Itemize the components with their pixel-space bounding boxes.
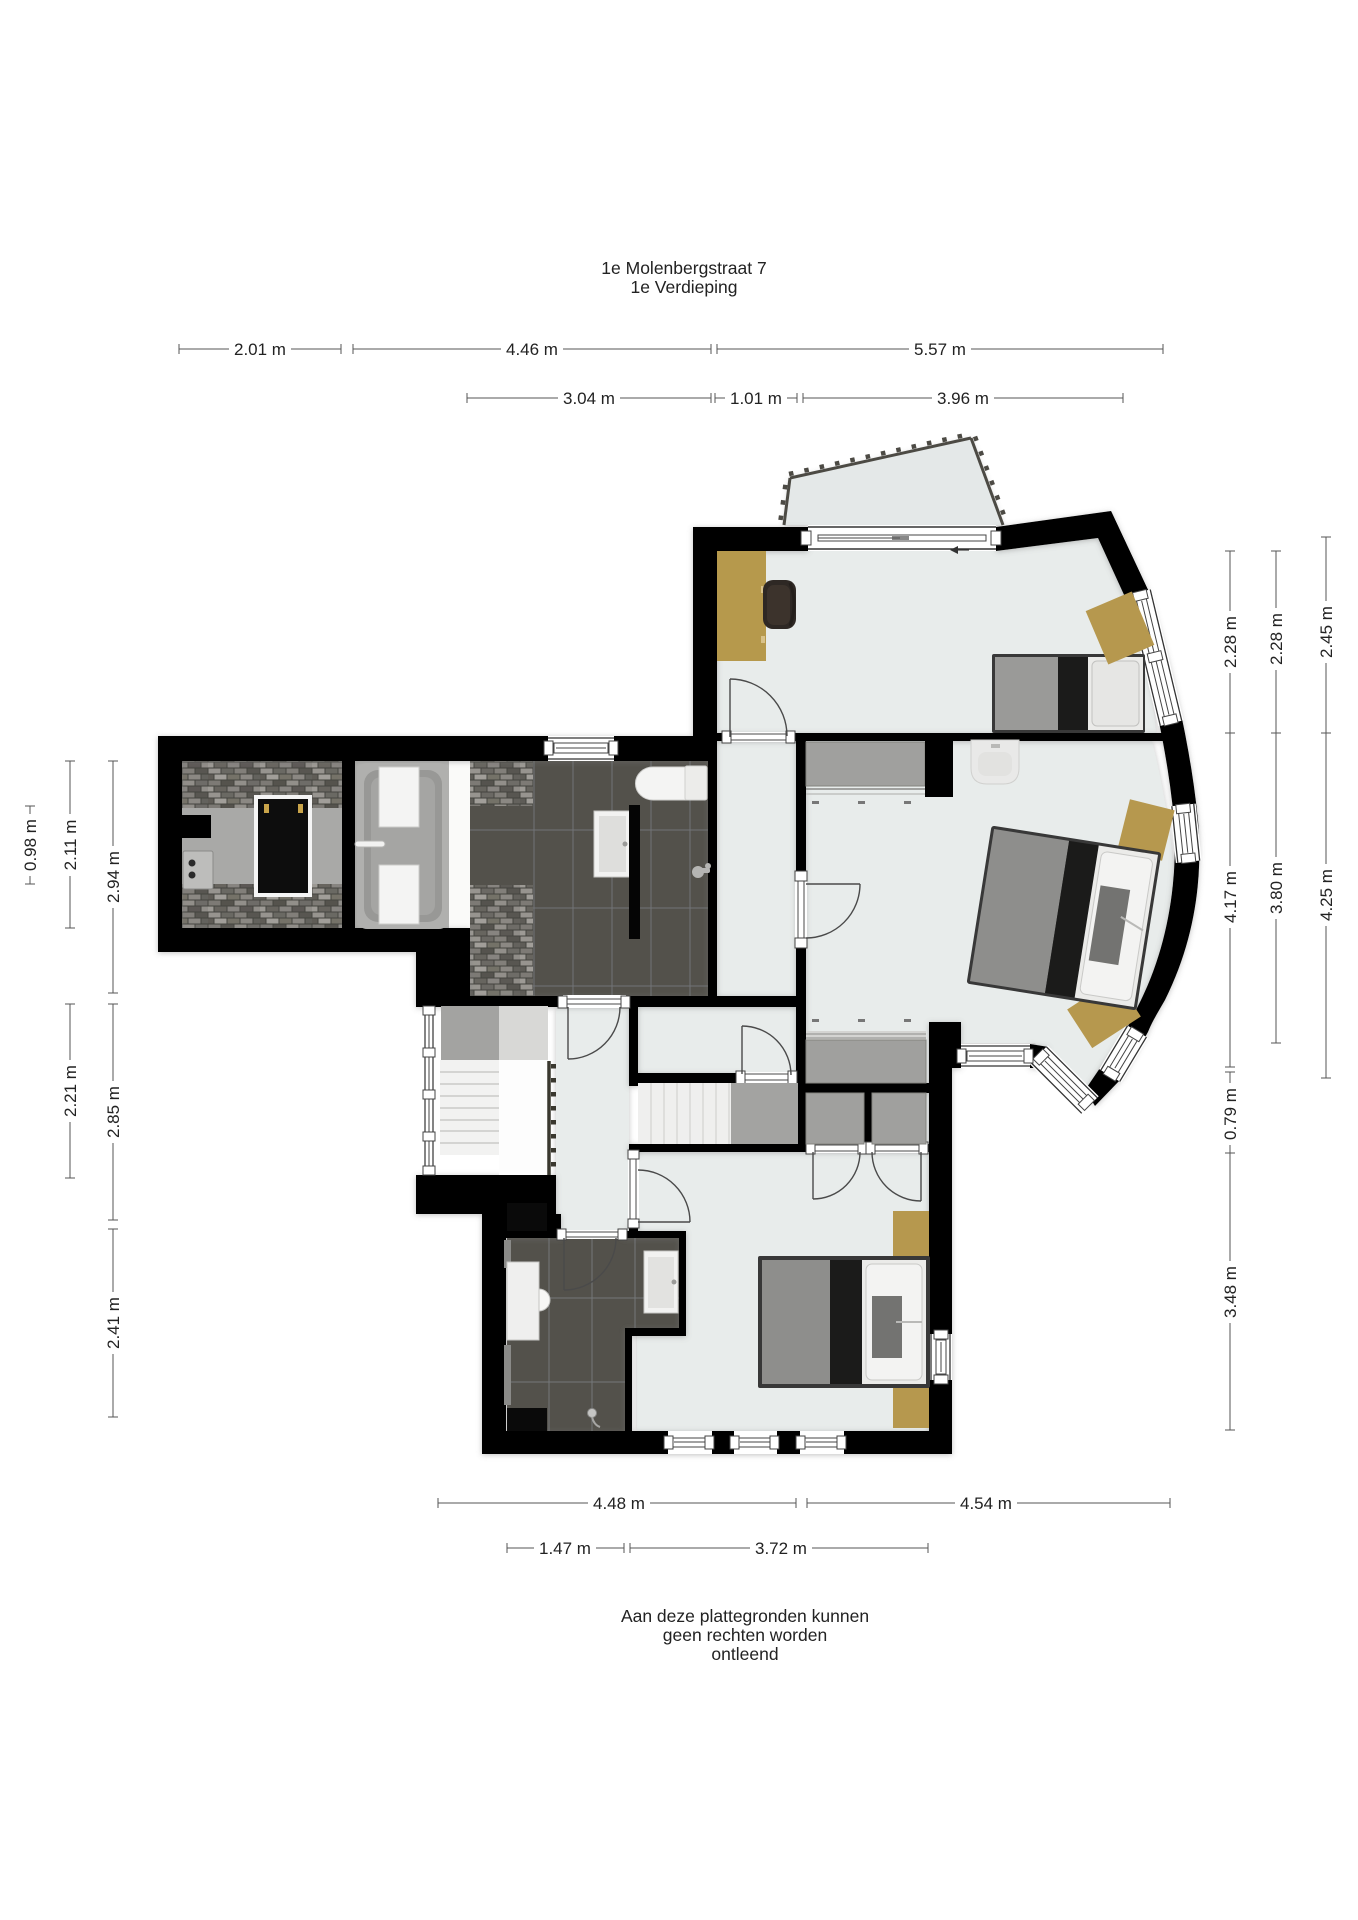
svg-text:2.21 m: 2.21 m <box>61 1065 80 1117</box>
svg-text:4.25 m: 4.25 m <box>1317 869 1336 921</box>
svg-text:2.28 m: 2.28 m <box>1221 616 1240 668</box>
svg-text:2.11 m: 2.11 m <box>61 820 80 871</box>
svg-text:3.04 m: 3.04 m <box>563 389 615 408</box>
svg-text:ontleend: ontleend <box>711 1644 778 1664</box>
svg-text:4.54 m: 4.54 m <box>960 1494 1012 1513</box>
svg-text:0.98 m: 0.98 m <box>21 819 40 871</box>
svg-text:2.94 m: 2.94 m <box>104 851 123 903</box>
svg-text:2.45 m: 2.45 m <box>1317 606 1336 658</box>
svg-text:4.17 m: 4.17 m <box>1221 871 1240 923</box>
svg-text:3.48 m: 3.48 m <box>1221 1266 1240 1318</box>
svg-text:1e Verdieping: 1e Verdieping <box>630 277 737 297</box>
svg-text:0.79 m: 0.79 m <box>1221 1088 1240 1140</box>
svg-text:3.72 m: 3.72 m <box>755 1539 807 1558</box>
svg-text:2.41 m: 2.41 m <box>104 1297 123 1349</box>
svg-text:2.85 m: 2.85 m <box>104 1086 123 1138</box>
svg-text:Aan deze plattegronden kunnen: Aan deze plattegronden kunnen <box>621 1606 869 1626</box>
svg-text:1.47 m: 1.47 m <box>539 1539 591 1558</box>
svg-text:1.01 m: 1.01 m <box>730 389 782 408</box>
svg-text:2.01 m: 2.01 m <box>234 340 286 359</box>
svg-text:4.48 m: 4.48 m <box>593 1494 645 1513</box>
svg-text:4.46 m: 4.46 m <box>506 340 558 359</box>
svg-text:3.96 m: 3.96 m <box>937 389 989 408</box>
svg-text:geen rechten worden: geen rechten worden <box>663 1625 827 1645</box>
svg-text:5.57 m: 5.57 m <box>914 340 966 359</box>
svg-text:2.28 m: 2.28 m <box>1267 613 1286 665</box>
svg-text:3.80 m: 3.80 m <box>1267 862 1286 914</box>
svg-text:1e Molenbergstraat 7: 1e Molenbergstraat 7 <box>601 258 766 278</box>
